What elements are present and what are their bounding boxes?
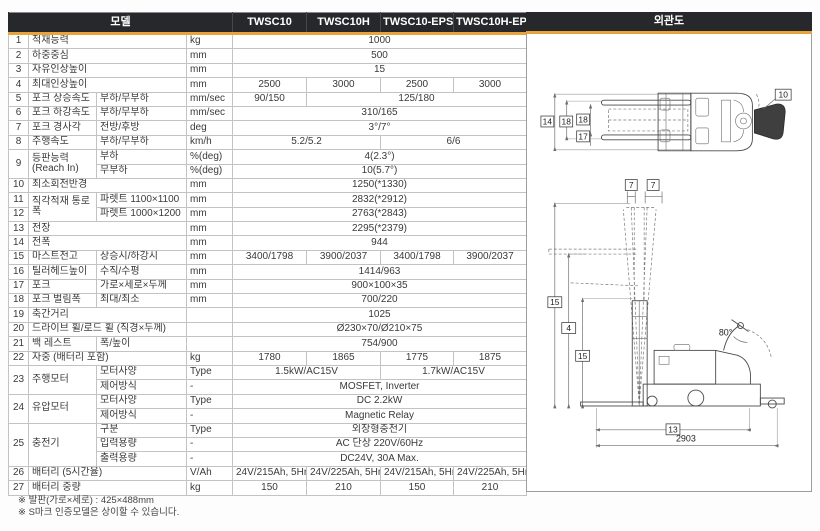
val-cell: 1775: [381, 351, 454, 365]
val-cell: 900×100×35: [233, 279, 527, 293]
name-cell: 유압모터: [29, 394, 97, 423]
name-cell: 적재능력: [29, 34, 187, 49]
dim-label-10: 10: [775, 89, 791, 100]
unit-cell: mm/sec: [187, 92, 233, 106]
name-cell: 주행속도: [29, 135, 97, 149]
exterior-view-drawing: 14 18 18 17 10: [527, 34, 811, 490]
sub-cell: 제어방식: [97, 380, 187, 394]
val-cell: 3000: [307, 78, 381, 92]
spec-row: 27배터리 중량kg150210150210: [9, 481, 527, 495]
num-cell: 5: [9, 92, 29, 106]
unit-cell: -: [187, 437, 233, 451]
num-cell: 23: [9, 365, 29, 394]
svg-text:18: 18: [578, 114, 588, 124]
val-cell: 1025: [233, 308, 527, 322]
unit-cell: -: [187, 409, 233, 423]
name-cell: 자중 (배터리 포함): [29, 351, 187, 365]
dim-label-17: 17: [577, 131, 590, 142]
val-cell: DC24V, 30A Max.: [233, 452, 527, 466]
sub-cell: 파렛트 1000×1200: [97, 207, 187, 221]
spec-row: 13전장mm2295(*2379): [9, 222, 527, 236]
num-cell: 27: [9, 481, 29, 495]
dim-label-14: 14: [541, 116, 554, 127]
val-cell: 3000: [454, 78, 527, 92]
svg-text:80°: 80°: [719, 327, 733, 337]
unit-cell: -: [187, 380, 233, 394]
spec-table-body: 1적재능력kg10002하중중심mm5003자유인상높이mm154최대인상높이m…: [9, 34, 527, 496]
val-cell: 150: [233, 481, 307, 495]
num-cell: 24: [9, 394, 29, 423]
svg-text:14: 14: [543, 116, 553, 126]
svg-text:15: 15: [578, 351, 588, 361]
footnote-smark: ※ S마크 인증모델은 상이할 수 있습니다.: [18, 507, 179, 519]
unit-cell: -: [187, 452, 233, 466]
num-cell: 14: [9, 236, 29, 250]
val-cell: 1.7kW/AC15V: [381, 365, 527, 379]
svg-text:15: 15: [550, 297, 560, 307]
unit-cell: mm: [187, 49, 233, 63]
svg-text:17: 17: [578, 131, 588, 141]
exterior-view-title: 외관도: [526, 12, 812, 34]
name-cell: 포크 상승속도: [29, 92, 97, 106]
val-cell: MOSFET, Inverter: [233, 380, 527, 394]
unit-cell: Type: [187, 365, 233, 379]
spec-row: 5포크 상승속도부하/무부하mm/sec90/150125/180: [9, 92, 527, 106]
unit-cell: mm: [187, 294, 233, 308]
unit-cell: mm: [187, 250, 233, 264]
num-cell: 9: [9, 150, 29, 179]
spec-row: 11직각적재 통로폭파렛트 1100×1100mm2832(*2912): [9, 193, 527, 207]
num-cell: 7: [9, 121, 29, 135]
unit-cell: deg: [187, 121, 233, 135]
svg-text:4: 4: [566, 323, 571, 333]
unit-cell: kg: [187, 481, 233, 495]
val-cell: 외장형충전기: [233, 423, 527, 437]
spec-row: 25충전기구분Type외장형충전기: [9, 423, 527, 437]
num-cell: 6: [9, 106, 29, 120]
name-cell: 드라이브 휠/로드 휠 (직경×두께): [29, 322, 187, 336]
svg-text:7: 7: [651, 180, 656, 190]
svg-text:7: 7: [629, 180, 634, 190]
sub-cell: 제어방식: [97, 409, 187, 423]
val-cell: 754/900: [233, 337, 527, 351]
name-cell: 등판능력 (Reach In): [29, 150, 97, 179]
forklift-diagram-svg: 14 18 18 17 10: [527, 34, 811, 490]
sub-cell: 부하/무부하: [97, 92, 187, 106]
sub-cell: 폭/높이: [97, 337, 187, 351]
sub-cell: 부하/무부하: [97, 135, 187, 149]
val-cell: 500: [233, 49, 527, 63]
footnotes: ※ 발판(가로×세로) : 425×488mm ※ S마크 인증모델은 상이할 …: [18, 495, 179, 519]
sub-cell: 부하: [97, 150, 187, 164]
dim-label-15-upper: 15: [548, 297, 562, 308]
num-cell: 3: [9, 63, 29, 77]
name-cell: 배터리 (5시간율): [29, 466, 187, 480]
num-cell: 13: [9, 222, 29, 236]
val-cell: 3400/1798: [381, 250, 454, 264]
val-cell: DC 2.2kW: [233, 394, 527, 408]
unit-cell: V/Ah: [187, 466, 233, 480]
sub-cell: 전방/후방: [97, 121, 187, 135]
spec-row: 16틸러헤드높이수직/수평mm1414/963: [9, 265, 527, 279]
num-cell: 12: [9, 207, 29, 221]
sub-cell: 출력용량: [97, 452, 187, 466]
spec-row: 18포크 벌림폭최대/최소mm700/220: [9, 294, 527, 308]
sub-cell: 가로×세로×두께: [97, 279, 187, 293]
val-cell: 1865: [307, 351, 381, 365]
spec-row: 21백 레스트폭/높이754/900: [9, 337, 527, 351]
spec-row: 7포크 경사각전방/후방deg3°/7°: [9, 121, 527, 135]
spec-row: 22자중 (배터리 포함)kg1780186517751875: [9, 351, 527, 365]
name-cell: 최대인상높이: [29, 78, 187, 92]
val-cell: 2500: [381, 78, 454, 92]
val-cell: Magnetic Relay: [233, 409, 527, 423]
spec-row: 8주행속도부하/무부하km/h5.2/5.26/6: [9, 135, 527, 149]
num-cell: 18: [9, 294, 29, 308]
spec-row: 6포크 하강속도부하/무부하mm/sec310/165: [9, 106, 527, 120]
num-cell: 4: [9, 78, 29, 92]
svg-text:10: 10: [779, 90, 789, 100]
unit-cell: [187, 337, 233, 351]
unit-cell: km/h: [187, 135, 233, 149]
val-cell: 5.2/5.2: [233, 135, 381, 149]
side-view-drawing: [549, 191, 784, 447]
spec-row: 3자유인상높이mm15: [9, 63, 527, 77]
val-cell: 944: [233, 236, 527, 250]
val-cell: 1875: [454, 351, 527, 365]
val-cell: 1780: [233, 351, 307, 365]
num-cell: 22: [9, 351, 29, 365]
unit-cell: mm: [187, 265, 233, 279]
val-cell: 4(2.3°): [233, 150, 527, 164]
sub-cell: 상승시/하강시: [97, 250, 187, 264]
val-cell: 210: [307, 481, 381, 495]
spec-table-header: 모델 TWSC10TWSC10HTWSC10-EPSTWSC10H-EPS: [9, 13, 527, 34]
unit-cell: mm: [187, 78, 233, 92]
sub-cell: 최대/최소: [97, 294, 187, 308]
name-cell: 틸러헤드높이: [29, 265, 97, 279]
dim-label-80deg: 80°: [719, 327, 733, 337]
num-cell: 1: [9, 34, 29, 49]
model-column-header: TWSC10H-EPS: [454, 13, 527, 34]
dim-label-7a: 7: [625, 180, 637, 191]
name-cell: 포크: [29, 279, 97, 293]
val-cell: 24V/225Ah, 5Hr: [454, 466, 527, 480]
name-cell: 백 레스트: [29, 337, 97, 351]
unit-cell: mm: [187, 193, 233, 207]
spec-sheet-page: 모델 TWSC10TWSC10HTWSC10-EPSTWSC10H-EPS 1적…: [0, 0, 820, 531]
sub-cell: 무부하: [97, 164, 187, 178]
unit-cell: mm/sec: [187, 106, 233, 120]
exterior-view-panel: 외관도: [526, 12, 812, 492]
model-column-header: TWSC10: [233, 13, 307, 34]
tiller-pad: [754, 104, 785, 139]
spec-table: 모델 TWSC10TWSC10HTWSC10-EPSTWSC10H-EPS 1적…: [8, 12, 527, 496]
spec-row: 24유압모터모터사양TypeDC 2.2kW: [9, 394, 527, 408]
spec-row: 26배터리 (5시간율)V/Ah24V/215Ah, 5Hr24V/225Ah,…: [9, 466, 527, 480]
unit-cell: mm: [187, 63, 233, 77]
val-cell: 210: [454, 481, 527, 495]
val-cell: 2832(*2912): [233, 193, 527, 207]
name-cell: 전장: [29, 222, 187, 236]
spec-row: 19축간거리1025: [9, 308, 527, 322]
unit-cell: mm: [187, 222, 233, 236]
spec-row: 20드라이브 휠/로드 휠 (직경×두께)Ø230×70/Ø210×75: [9, 322, 527, 336]
val-cell: 3900/2037: [307, 250, 381, 264]
val-cell: 3400/1798: [233, 250, 307, 264]
num-cell: 2: [9, 49, 29, 63]
spec-row: 4최대인상높이mm2500300025003000: [9, 78, 527, 92]
val-cell: 1414/963: [233, 265, 527, 279]
unit-cell: kg: [187, 351, 233, 365]
unit-cell: [187, 322, 233, 336]
spec-row: 10최소회전반경mm1250(*1330): [9, 178, 527, 192]
val-cell: 3°/7°: [233, 121, 527, 135]
val-cell: 2763(*2843): [233, 207, 527, 221]
num-cell: 26: [9, 466, 29, 480]
val-cell: 24V/215Ah, 5Hr: [233, 466, 307, 480]
val-cell: 310/165: [233, 106, 527, 120]
unit-cell: kg: [187, 34, 233, 49]
val-cell: 6/6: [381, 135, 527, 149]
footnote-footplate: ※ 발판(가로×세로) : 425×488mm: [18, 495, 179, 507]
unit-cell: %(deg): [187, 164, 233, 178]
sub-cell: 부하/무부하: [97, 106, 187, 120]
dim-label-18-outer: 18: [560, 116, 573, 127]
val-cell: 24V/215Ah, 5Hr: [381, 466, 454, 480]
val-cell: 15: [233, 63, 527, 77]
name-cell: 마스트전고: [29, 250, 97, 264]
unit-cell: %(deg): [187, 150, 233, 164]
num-cell: 15: [9, 250, 29, 264]
unit-cell: [187, 308, 233, 322]
name-cell: 충전기: [29, 423, 97, 466]
num-cell: 16: [9, 265, 29, 279]
val-cell: 125/180: [307, 92, 527, 106]
sub-cell: 구분: [97, 423, 187, 437]
name-cell: 하중중심: [29, 49, 187, 63]
sub-cell: 수직/수평: [97, 265, 187, 279]
name-cell: 포크 경사각: [29, 121, 97, 135]
svg-text:18: 18: [562, 116, 572, 126]
num-cell: 11: [9, 193, 29, 207]
spec-row: 14전폭mm944: [9, 236, 527, 250]
svg-text:2903: 2903: [676, 434, 696, 444]
model-header-cell: 모델: [9, 13, 233, 34]
spec-row: 17포크가로×세로×두께mm900×100×35: [9, 279, 527, 293]
unit-cell: Type: [187, 394, 233, 408]
sub-cell: 모터사양: [97, 365, 187, 379]
model-column-header: TWSC10-EPS: [381, 13, 454, 34]
val-cell: 24V/225Ah, 5Hr: [307, 466, 381, 480]
val-cell: 3900/2037: [454, 250, 527, 264]
dim-label-15-lower: 15: [576, 350, 590, 361]
name-cell: 축간거리: [29, 308, 187, 322]
unit-cell: mm: [187, 207, 233, 221]
model-column-header: TWSC10H: [307, 13, 381, 34]
num-cell: 10: [9, 178, 29, 192]
val-cell: 2500: [233, 78, 307, 92]
name-cell: 직각적재 통로폭: [29, 193, 97, 222]
unit-cell: mm: [187, 279, 233, 293]
dim-label-18-inner: 18: [577, 114, 590, 125]
sub-cell: 파렛트 1100×1100: [97, 193, 187, 207]
sub-cell: 모터사양: [97, 394, 187, 408]
num-cell: 17: [9, 279, 29, 293]
num-cell: 8: [9, 135, 29, 149]
val-cell: 1.5kW/AC15V: [233, 365, 381, 379]
unit-cell: Type: [187, 423, 233, 437]
name-cell: 전폭: [29, 236, 187, 250]
spec-row: 15마스트전고상승시/하강시mm3400/17983900/20373400/1…: [9, 250, 527, 264]
spec-row: 2하중중심mm500: [9, 49, 527, 63]
val-cell: 150: [381, 481, 454, 495]
sub-cell: 입력용량: [97, 437, 187, 451]
name-cell: 배터리 중량: [29, 481, 187, 495]
spec-row: 1적재능력kg1000: [9, 34, 527, 49]
unit-cell: mm: [187, 178, 233, 192]
spec-row: 9등판능력 (Reach In)부하%(deg)4(2.3°): [9, 150, 527, 164]
val-cell: AC 단상 220V/60Hz: [233, 437, 527, 451]
num-cell: 25: [9, 423, 29, 466]
val-cell: 700/220: [233, 294, 527, 308]
num-cell: 20: [9, 322, 29, 336]
num-cell: 19: [9, 308, 29, 322]
val-cell: Ø230×70/Ø210×75: [233, 322, 527, 336]
val-cell: 90/150: [233, 92, 307, 106]
dim-label-7b: 7: [647, 180, 659, 191]
name-cell: 포크 하강속도: [29, 106, 97, 120]
spec-row: 23주행모터모터사양Type1.5kW/AC15V1.7kW/AC15V: [9, 365, 527, 379]
unit-cell: mm: [187, 236, 233, 250]
dim-label-4: 4: [562, 323, 576, 334]
val-cell: 1000: [233, 34, 527, 49]
dim-label-2903: 2903: [676, 434, 696, 444]
name-cell: 주행모터: [29, 365, 97, 394]
name-cell: 포크 벌림폭: [29, 294, 97, 308]
val-cell: 1250(*1330): [233, 178, 527, 192]
num-cell: 21: [9, 337, 29, 351]
name-cell: 자유인상높이: [29, 63, 187, 77]
val-cell: 2295(*2379): [233, 222, 527, 236]
val-cell: 10(5.7°): [233, 164, 527, 178]
name-cell: 최소회전반경: [29, 178, 187, 192]
